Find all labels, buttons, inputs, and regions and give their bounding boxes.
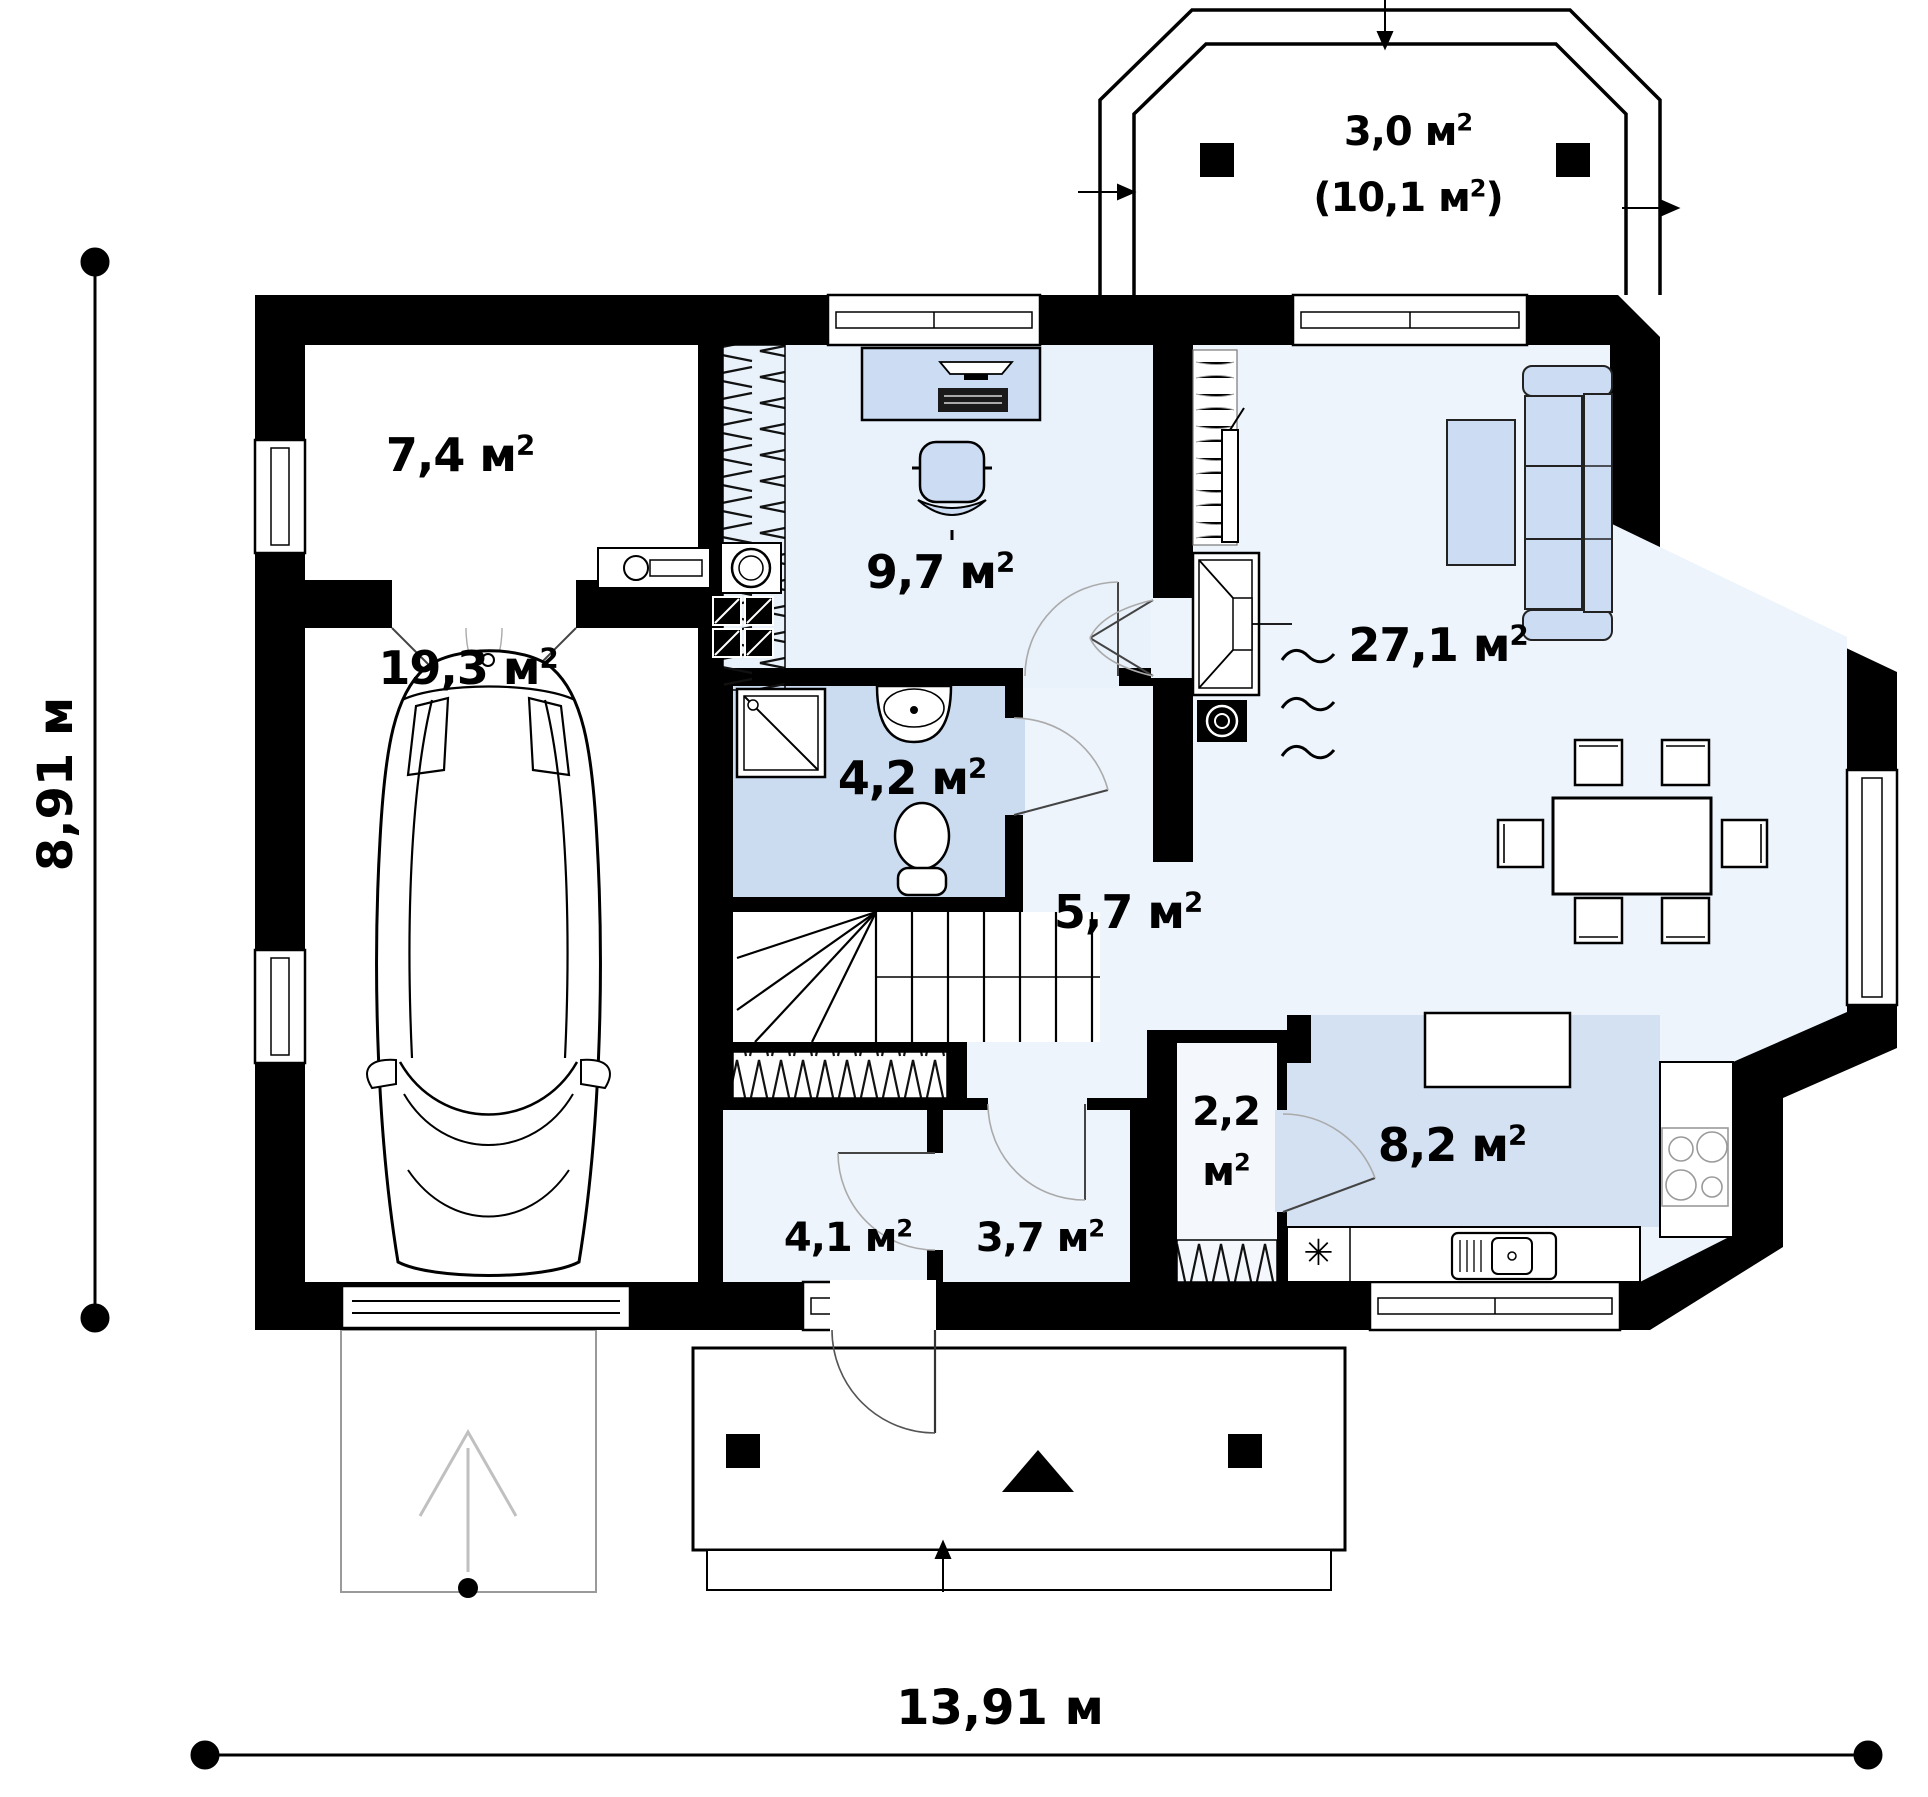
stove-mark: ✳ xyxy=(1303,1236,1332,1272)
room-label-terrace-total: (10,1 м2) xyxy=(1313,178,1503,218)
room-label-kitchen: 8,2 м2 xyxy=(1378,1122,1526,1168)
dimension-label-width: 13,91 м xyxy=(896,1684,1104,1732)
porch-column-left xyxy=(726,1434,760,1468)
kitchen-island-icon xyxy=(1425,1013,1570,1087)
room-label-vestibule: 3,7 м2 xyxy=(976,1218,1104,1258)
fireplace-flue xyxy=(1197,700,1247,742)
boiler-icon xyxy=(721,543,781,593)
floor-plan-drawing xyxy=(0,0,1928,1797)
closet-hatch xyxy=(733,1052,947,1098)
room-label-pantry-unit: м2 xyxy=(1202,1152,1249,1192)
keyboard-icon xyxy=(938,388,1008,412)
car-icon xyxy=(367,651,610,1276)
porch-column-right xyxy=(1228,1434,1262,1468)
dimension-line-left xyxy=(82,249,108,1331)
window-office-top xyxy=(828,295,1040,345)
stove-icon xyxy=(1662,1128,1728,1206)
gap-living-door xyxy=(1151,598,1195,678)
room-label-bathroom: 4,2 м2 xyxy=(838,755,986,801)
workbench-icon xyxy=(598,548,710,588)
dimension-line-bottom xyxy=(192,1742,1881,1768)
porch-outline xyxy=(693,1348,1345,1590)
window-living-top xyxy=(1293,295,1527,345)
gap-pantry-door xyxy=(1275,1110,1289,1212)
terrace-column-right xyxy=(1556,143,1590,177)
gap-front-door xyxy=(830,1280,936,1332)
window-kitchen xyxy=(1370,1282,1620,1330)
shower-icon xyxy=(737,689,825,777)
room-label-office: 9,7 м2 xyxy=(866,549,1014,595)
garage-driveway xyxy=(341,1330,596,1598)
dimension-label-height: 8,91 м xyxy=(32,697,80,871)
sofa-icon xyxy=(1523,366,1612,640)
garage-door-icon xyxy=(342,1286,630,1328)
pantry-shelves-icon xyxy=(1177,1240,1277,1282)
tv-icon xyxy=(1222,430,1238,542)
kitchen-appliance-block xyxy=(1287,1015,1311,1063)
monitor-icon xyxy=(940,362,1012,374)
room-label-hall: 5,7 м2 xyxy=(1054,889,1202,935)
gap-office-door xyxy=(1023,666,1119,688)
room-label-living: 27,1 м2 xyxy=(1348,622,1527,668)
floor-plan: 7,4 м2 19,3 м2 9,7 м2 4,2 м2 5,7 м2 27,1… xyxy=(0,0,1928,1797)
dining-table-icon xyxy=(1553,798,1711,894)
coffee-table-icon xyxy=(1447,420,1515,565)
tv-wall xyxy=(1193,350,1244,545)
window-garage-left xyxy=(255,950,305,1063)
gap-garage-inner-doors xyxy=(392,578,576,630)
window-dining-bay xyxy=(1847,770,1897,1005)
sink-icon xyxy=(1452,1233,1556,1279)
room-label-storage: 7,4 м2 xyxy=(386,432,534,478)
room-label-terrace: 3,0 м2 xyxy=(1344,112,1472,152)
terrace-column-left xyxy=(1200,143,1234,177)
gap-vestibule-door xyxy=(988,1096,1087,1112)
desk-icon xyxy=(862,348,1040,420)
window-storage-left xyxy=(255,440,305,553)
toilet-icon xyxy=(895,803,949,895)
gap-bath-door xyxy=(1003,718,1025,815)
gap-wardrobe-door xyxy=(925,1153,945,1250)
room-label-wardrobe-room: 4,1 м2 xyxy=(784,1218,912,1258)
room-label-pantry-value: 2,2 xyxy=(1192,1092,1260,1132)
room-label-garage: 19,3 м2 xyxy=(378,645,557,691)
